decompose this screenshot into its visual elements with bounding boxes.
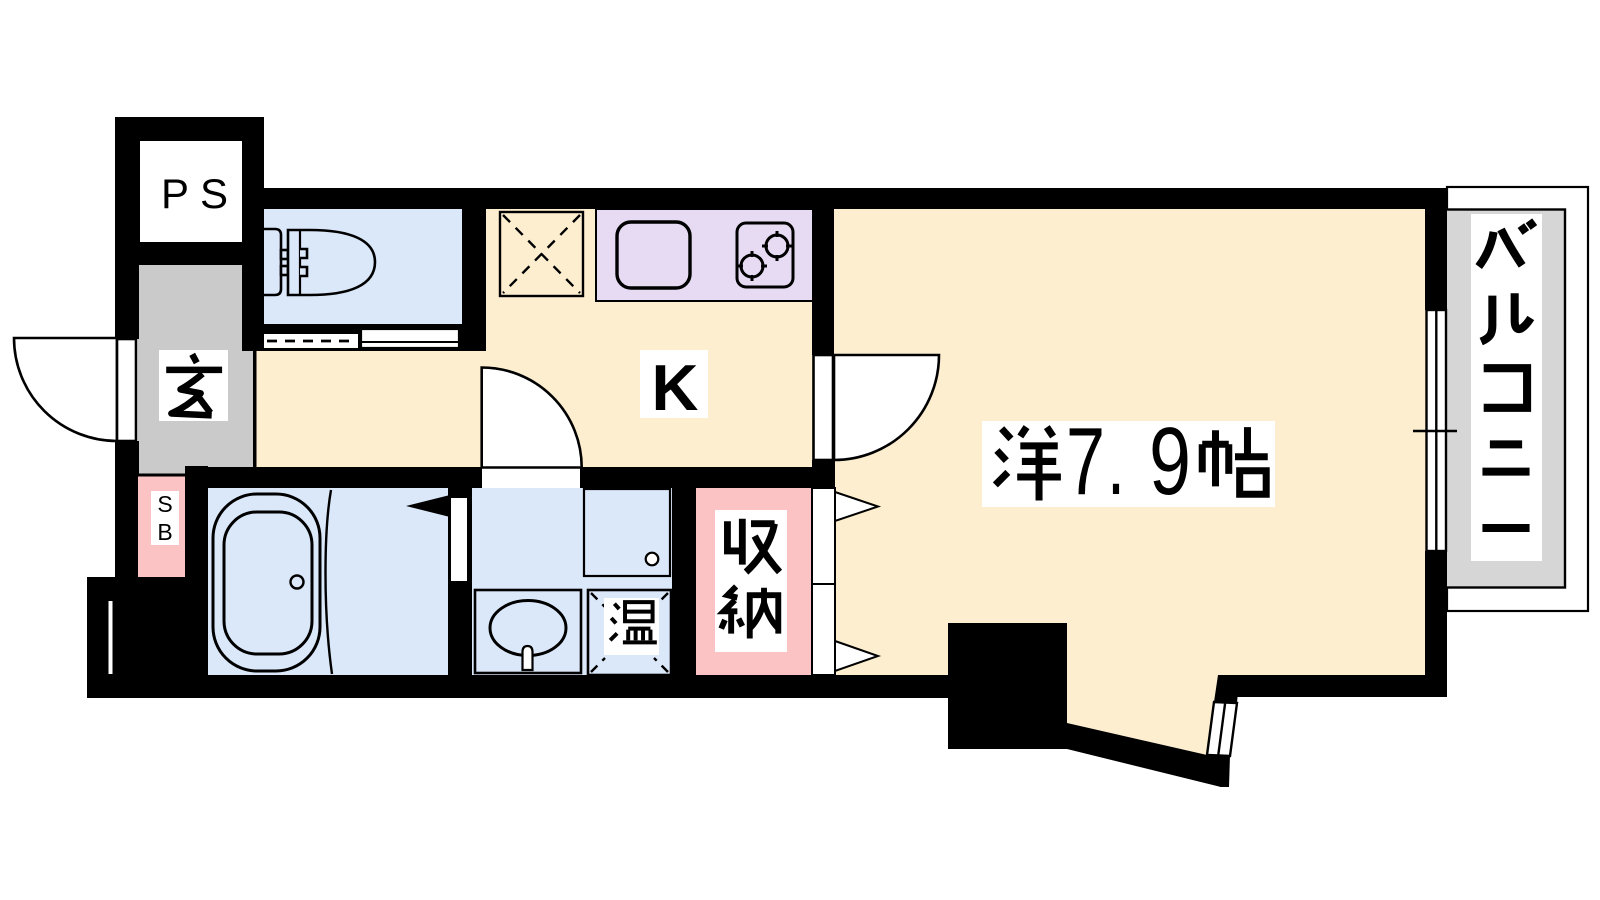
svg-text:K: K [652, 351, 699, 424]
svg-text:.: . [1107, 408, 1125, 515]
svg-text:B: B [157, 519, 172, 545]
svg-text:S: S [157, 491, 172, 517]
svg-text:PS: PS [161, 170, 239, 217]
svg-text:7: 7 [1066, 408, 1105, 515]
svg-text:9: 9 [1149, 408, 1191, 515]
